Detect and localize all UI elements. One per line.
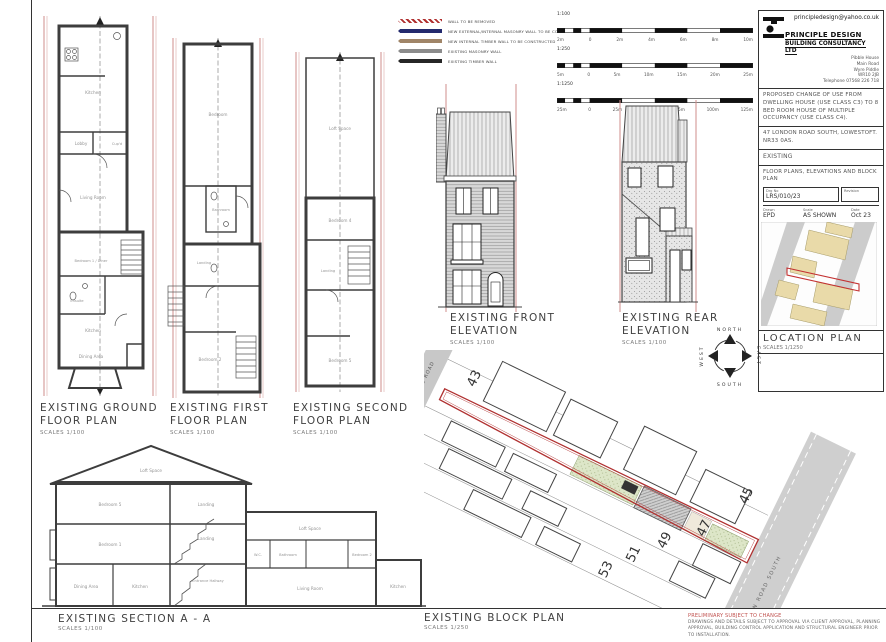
tick: 10m [644, 73, 654, 78]
room-label: W.C. [254, 553, 262, 557]
legend-swatch-0 [398, 19, 442, 23]
project-description: PROPOSED CHANGE OF USE FROM DWELLING HOU… [763, 92, 879, 123]
chimney-pot [438, 108, 441, 114]
tick: 0 [588, 108, 591, 113]
drawing-scale: SCALES 1/100 [170, 430, 282, 436]
block-plan-caption: EXISTING BLOCK PLAN SCALES 1/250 [424, 612, 644, 631]
legend-item: EXISTING TIMBER WALL [398, 56, 556, 66]
drawing-title: EXISTING FIRST FLOOR PLAN [170, 402, 282, 428]
roof-step [678, 120, 687, 162]
room-label: Loft Space [329, 126, 351, 131]
scale-bar-ticks: 2m02m4m6m8m10m [557, 38, 753, 43]
legend-label: WALL TO BE REMOVED [448, 19, 495, 24]
legend-item: WALL TO BE REMOVED [398, 16, 556, 26]
divider [759, 149, 883, 150]
room-label: Entrance Hallway [192, 579, 224, 583]
section-structure [50, 446, 421, 606]
room-label: Bedroom 2 [199, 357, 222, 362]
room-label: Loft Space [140, 468, 162, 473]
legend-item: EXISTING MASONRY WALL [398, 46, 556, 56]
location-plan-map [761, 222, 877, 326]
drg-no-value: LRS/010/23 [766, 193, 836, 200]
room-label: Landing [197, 261, 211, 265]
room-label: Landing [198, 502, 215, 507]
tick: 5m [614, 73, 621, 78]
room-label: Dining Area [74, 584, 99, 589]
room-label: Landing [321, 269, 335, 273]
room-label: Loft Space [299, 526, 321, 531]
revision-label: Revision [844, 189, 876, 193]
legend-swatch-1 [398, 29, 442, 33]
room-label: Kitchen [390, 584, 406, 589]
drawing-scale: SCALES 1/100 [58, 626, 318, 632]
room-label: Cup'd [112, 142, 122, 146]
chimney [436, 114, 446, 182]
ground-floor-plan-drawing: Kitchen Lobby Cup'd Living Room Bedroom … [35, 14, 165, 398]
tick: 5m [557, 73, 564, 78]
room-label: Bedroom 5 [99, 502, 122, 507]
tick: 125m [741, 108, 753, 113]
front-elevation-caption: EXISTING FRONT ELEVATION SCALES 1/100 [450, 312, 560, 346]
date-value: Oct 23 [851, 212, 879, 219]
legend-swatch-3 [398, 49, 442, 53]
drawing-scale: SCALES 1/100 [450, 340, 560, 346]
room-label: Bedroom 2 [352, 553, 372, 557]
sheet-border-left [31, 0, 32, 642]
disclaimer-note: DRAWINGS AND DETAILS SUBJECT TO APPROVAL… [688, 620, 882, 639]
plot-number-53: 53 [596, 559, 617, 580]
scale-bar-ratio: 1:250 [557, 47, 755, 52]
plot-number-49: 49 [655, 530, 676, 551]
room-label: Ensuite [70, 299, 84, 303]
drawing-title: EXISTING FRONT ELEVATION [450, 312, 560, 338]
tick: 2m [616, 38, 623, 43]
site-address: 47 LONDON ROAD SOUTH, LOWESTOFT. NR33 0A… [763, 130, 879, 146]
room-label: Kitchen [132, 584, 148, 589]
drawing-scale: SCALES 1/250 [424, 625, 644, 631]
section-stairs [174, 519, 214, 606]
company-name-2: BUILDING CONSULTANCY LTD [785, 41, 866, 55]
location-plan-title: LOCATION PLAN [759, 330, 883, 344]
tick: 6m [680, 38, 687, 43]
room-label: Dining Area [79, 354, 104, 359]
legend-label: EXISTING MASONRY WALL [448, 49, 502, 54]
company-address: Pibble House Main Road Wyre Piddle WR10 … [763, 56, 879, 85]
wall-legend: WALL TO BE REMOVED NEW EXTERNAL/INTERNAL… [398, 16, 556, 66]
cornice [444, 176, 516, 181]
stairs [121, 240, 143, 274]
stairs [326, 246, 370, 302]
scale-bar-1-100: 1:100 2m02m4m6m8m10m [557, 12, 755, 43]
section-arrow-icon [96, 17, 104, 25]
drg-no-box: Drg No LRS/010/23 [763, 187, 839, 202]
tick: 10m [743, 38, 753, 43]
tick: 2m [557, 38, 564, 43]
room-label: Bathroom [212, 208, 230, 212]
drawing-title: EXISTING GROUND FLOOR PLAN [40, 402, 162, 428]
scale-bar-1-250: 1:250 5m05m10m15m20m25m [557, 47, 755, 78]
drawing-status: EXISTING [763, 153, 879, 162]
rear-door [670, 250, 680, 302]
tick: 4m [648, 38, 655, 43]
room-label: Bedroom 4 [329, 218, 352, 223]
company-email: principledesign@yahoo.co.uk [794, 15, 879, 21]
second-floor-plan-drawing: Loft Space Bedroom 4 Landing Bedroom 5 [290, 50, 390, 394]
drawing-title: EXISTING SECOND FLOOR PLAN [293, 402, 411, 428]
sheet-border-bottom [31, 608, 886, 609]
room-label: Bedroom [209, 112, 228, 117]
first-floor-plan-drawing: Bedroom Bathroom Landing Bedroom 2 [166, 36, 270, 400]
sheet-title: FLOOR PLANS, ELEVATIONS AND BLOCK PLAN [763, 169, 879, 185]
scale-bar-ratio: 1:100 [557, 12, 755, 17]
room-label: Living Room [80, 195, 106, 200]
ground-plan-caption: EXISTING GROUND FLOOR PLAN SCALES 1/100 [40, 402, 162, 436]
room-label: Bedroom 1 / Diner [75, 259, 108, 263]
scale-bar-graphic [557, 28, 753, 33]
front-elevation-drawing [436, 84, 524, 312]
divider [759, 165, 883, 166]
rear-elevation-drawing [618, 100, 706, 312]
roof [446, 112, 514, 180]
divider [759, 126, 883, 127]
title-block: principledesign@yahoo.co.uk PRINCIPLE DE… [758, 10, 884, 392]
scale-bar-ticks: 5m05m10m15m20m25m [557, 73, 753, 78]
legend-item: NEW EXTERNAL/INTERNAL MASONRY WALL TO BE… [398, 26, 556, 36]
room-label: Bedroom 5 [329, 358, 352, 363]
walls [59, 26, 143, 388]
room-label: Kitchen [85, 90, 101, 95]
scale-bar-graphic [557, 63, 753, 68]
legend-swatch-4 [398, 59, 442, 63]
tick: 8m [712, 38, 719, 43]
plot-number-51: 51 [624, 543, 645, 564]
tick: 0 [589, 38, 592, 43]
section-arrow-icon [336, 53, 344, 61]
compass-north-label: NORTH [717, 327, 743, 333]
tick: 0 [587, 73, 590, 78]
room-label: Bedroom 1 [99, 542, 122, 547]
drawing-scale: SCALES 1/100 [293, 430, 411, 436]
walls [184, 44, 260, 392]
legend-swatch-2 [398, 39, 442, 43]
second-plan-caption: EXISTING SECOND FLOOR PLAN SCALES 1/100 [293, 402, 411, 436]
drawn-value: EPD [763, 212, 803, 219]
scale-bars: 1:100 2m02m4m6m8m10m 1:250 [557, 12, 755, 113]
company-name: PRINCIPLE DESIGN [785, 31, 862, 40]
first-plan-caption: EXISTING FIRST FLOOR PLAN SCALES 1/100 [170, 402, 282, 436]
roof [622, 106, 682, 162]
drawing-scale: SCALES 1/100 [40, 430, 162, 436]
scale-bar-ratio: 1:1250 [557, 82, 755, 87]
legend-label: EXISTING TIMBER WALL [448, 59, 497, 64]
company-logo [763, 15, 787, 39]
drg-no-row: Drg No LRS/010/23 Revision [763, 187, 879, 202]
tick: 25m [557, 108, 567, 113]
legend-label: NEW INTERNAL TIMBER WALL TO BE CONSTRUCT… [448, 39, 555, 44]
tick: 100m [707, 108, 719, 113]
divider [759, 88, 883, 89]
legend-item: NEW INTERNAL TIMBER WALL TO BE CONSTRUCT… [398, 36, 556, 46]
room-label: Living Room [297, 586, 323, 591]
scale-value: AS SHOWN [803, 212, 851, 219]
notes: PRELIMINARY SUBJECT TO CHANGE DRAWINGS A… [688, 613, 882, 639]
tick: 25m [743, 73, 753, 78]
plot-number-43: 43 [464, 368, 485, 389]
preliminary-note: PRELIMINARY SUBJECT TO CHANGE [688, 613, 882, 619]
front-door [488, 273, 503, 306]
tick: 20m [710, 73, 720, 78]
block-plan-drawing: ST JOHNS ROAD LONDON ROAD SOUTH [424, 350, 886, 608]
section-drawing: Loft Space Bedroom 5 Landing Bedroom 1 L… [38, 440, 426, 608]
room-label: Kitchen [85, 328, 101, 333]
drawing-title: EXISTING SECTION A - A [58, 613, 318, 626]
tick: 15m [677, 73, 687, 78]
section-caption: EXISTING SECTION A - A SCALES 1/100 [58, 613, 318, 632]
room-label: Landing [198, 536, 215, 541]
drawing-sheet: Kitchen Lobby Cup'd Living Room Bedroom … [0, 0, 886, 642]
revision-box: Revision [841, 187, 879, 202]
drawn-row: Drawn EPD Scale AS SHOWN Date Oct 23 [763, 205, 879, 219]
chimney-pot [442, 108, 445, 114]
room-label: Bathroom [279, 553, 297, 557]
drawing-title: EXISTING BLOCK PLAN [424, 612, 644, 625]
room-label: Lobby [75, 141, 88, 146]
